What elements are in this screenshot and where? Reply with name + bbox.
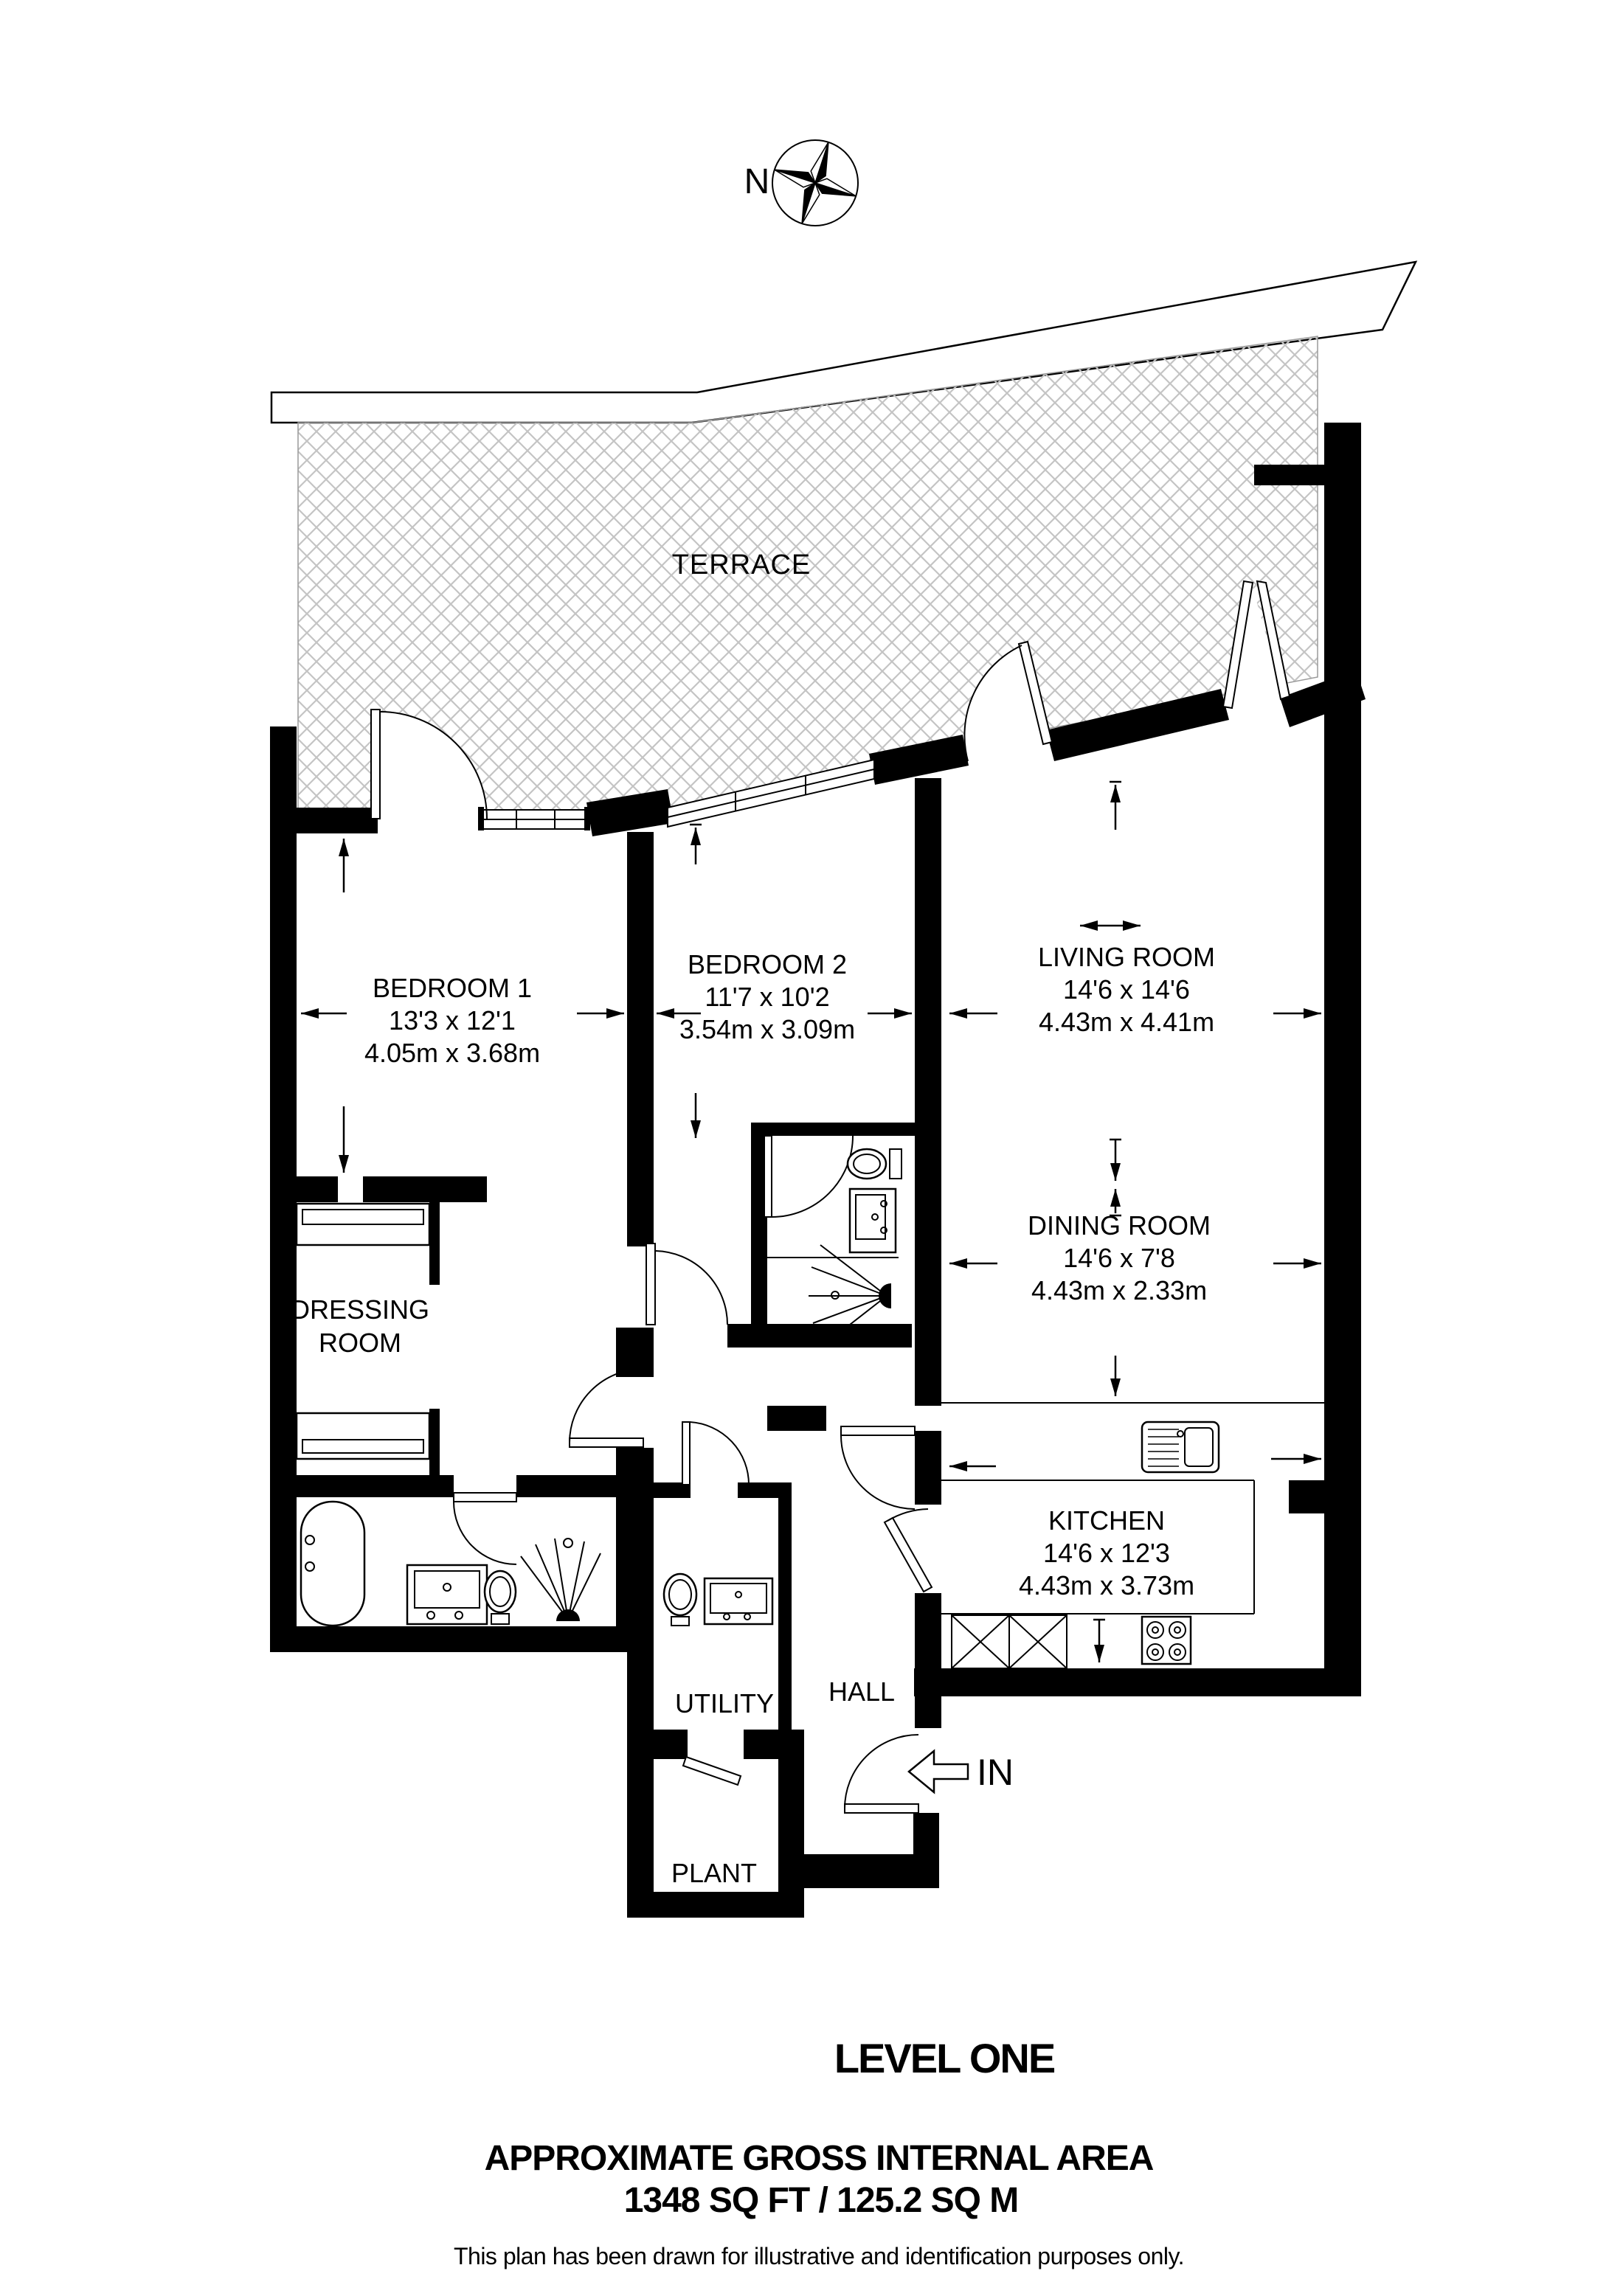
hall-name: HALL (828, 1676, 895, 1707)
kitchen-name: KITCHEN (1048, 1505, 1165, 1536)
bedroom2-name: BEDROOM 2 (688, 949, 847, 979)
bedroom1-window (478, 807, 590, 830)
living-room-dims-ft: 14'6 x 14'6 (1063, 974, 1190, 1005)
ensuite-door (764, 1136, 853, 1217)
bedroom2-door (646, 1244, 727, 1325)
floorplan-page: N TERRACE (0, 0, 1623, 2296)
footer-level: LEVEL ONE (834, 2035, 1055, 2081)
kitchen-door (885, 1509, 932, 1592)
dining-room-name: DINING ROOM (1028, 1210, 1211, 1241)
footer-area-value: 1348 SQ FT / 125.2 SQ M (624, 2181, 1019, 2220)
dressing-room-name-line1: DRESSING (291, 1294, 429, 1325)
terrace-area: TERRACE (271, 262, 1416, 810)
kitchen-dims-ft: 14'6 x 12'3 (1043, 1538, 1170, 1568)
bedroom2-dims-m: 3.54m x 3.09m (679, 1014, 855, 1044)
bathroom-shower (521, 1539, 601, 1621)
living-room-dims-m: 4.43m x 4.41m (1039, 1007, 1214, 1037)
bathtub (301, 1502, 364, 1626)
entrance-label: IN (977, 1752, 1014, 1793)
utility-name: UTILITY (675, 1688, 774, 1718)
plant-door (683, 1757, 741, 1785)
entrance-arrow-icon (909, 1751, 968, 1792)
bedroom1-name: BEDROOM 1 (373, 973, 532, 1003)
compass-north-label: N (744, 162, 770, 201)
bedroom1-door (570, 1369, 643, 1447)
utility-vanity (705, 1578, 772, 1624)
footer: LEVEL ONE APPROXIMATE GROSS INTERNAL ARE… (454, 2035, 1184, 2269)
dressing-room-name-line2: ROOM (319, 1328, 401, 1358)
bathroom-vanity (407, 1565, 487, 1624)
bedroom2-dims-ft: 11'7 x 10'2 (705, 982, 829, 1012)
kitchen-appliances (952, 1615, 1067, 1668)
utility-door (682, 1422, 749, 1485)
bedroom1-dims-m: 4.05m x 3.68m (364, 1038, 540, 1068)
utility-toilet (664, 1574, 696, 1626)
footer-disclaimer: This plan has been drawn for illustrativ… (454, 2243, 1184, 2269)
wardrobe-top (297, 1204, 429, 1245)
compass-icon: N (744, 140, 858, 226)
bedroom1-dims-ft: 13'3 x 12'1 (389, 1005, 516, 1036)
kitchen-sink (1142, 1422, 1219, 1472)
terrace-label: TERRACE (672, 549, 811, 580)
ensuite-vanity (850, 1189, 896, 1252)
living-room-name: LIVING ROOM (1038, 942, 1215, 972)
dining-room-dims-ft: 14'6 x 7'8 (1063, 1243, 1175, 1273)
floorplan-drawing: N TERRACE (0, 0, 1623, 2296)
ensuite-toilet (848, 1149, 902, 1179)
bathroom-toilet (485, 1571, 516, 1624)
dining-room-dims-m: 4.43m x 2.33m (1031, 1275, 1207, 1305)
kitchen-hob (1142, 1617, 1191, 1664)
dining-door (841, 1426, 915, 1509)
bathroom-door (454, 1493, 516, 1564)
entry-door (845, 1735, 918, 1813)
footer-area-title: APPROXIMATE GROSS INTERNAL AREA (485, 2139, 1154, 2178)
wardrobe-bottom (297, 1413, 429, 1459)
plant-name: PLANT (671, 1858, 757, 1888)
kitchen-dims-m: 4.43m x 3.73m (1019, 1570, 1194, 1600)
